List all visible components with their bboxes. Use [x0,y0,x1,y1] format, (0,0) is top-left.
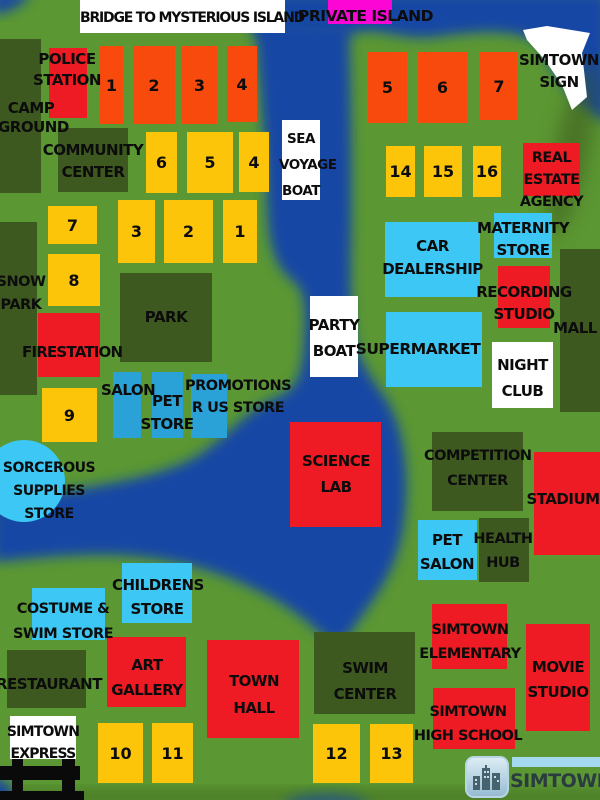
lot-number: 7 [493,77,504,96]
movie-studio-label: MOVIE STUDIO [516,655,600,705]
lot-yellow-1: 1 [223,200,257,263]
label-line: ESTATE [515,169,588,191]
label-line: STORE [112,597,202,621]
label-line: SEA [279,126,323,152]
swim-center-label: SWIM CENTER [312,655,418,707]
lot-number: 8 [68,271,79,290]
lot-yellow-single-9: 9 [42,388,97,442]
simtown-express-label: SIMTOWN EXPRESS [6,721,80,765]
lot-yellow-single-8: 8 [48,254,100,306]
label-line: SIGN [517,71,600,93]
lot-orange-2: 2 [133,46,175,124]
label-line: DEALERSHIP [379,258,486,281]
label-line: LAB [292,474,380,500]
railroad-tie-top [0,766,80,780]
lot-number: 2 [183,222,194,241]
simtown-logo-label: SIMTOWN [510,770,600,792]
label-line: CAMP [0,99,64,118]
party-boat-label: PARTY BOAT [306,312,362,364]
label-line: MOVIE [516,655,600,680]
lot-number: 7 [67,216,78,235]
label-line: CENTER [312,681,418,707]
label-line: PARTY [306,312,362,338]
label-line: CLUB [490,378,555,404]
supermarket-label: SUPERMARKET [347,338,489,360]
label-line: STATION [18,70,116,91]
lot-number: 5 [382,78,393,97]
label-line: MATERNITY [477,217,569,239]
label-line: COSTUME & [12,597,114,622]
label-line: SUPPLIES [2,480,96,503]
label-line: CENTER [39,161,147,183]
lot-orange-3: 3 [182,46,217,124]
lot-number: 4 [236,75,247,94]
label-line: PARK [0,294,46,317]
simtown-map-canvas: 1 2 3 4 5 6 7 6 5 4 3 2 1 7 8 9 14 15 16… [0,0,600,800]
private-island-label: PRIVATE ISLAND [298,5,420,27]
simtown-high-school-label: SIMTOWN HIGH SCHOOL [411,700,525,748]
label-line: STUDIO [516,680,600,705]
lot-yellow-15: 15 [424,146,462,197]
lot-number: 13 [380,744,402,763]
label-line: ART [106,653,188,678]
lot-orange-7: 7 [480,52,518,120]
lot-yellow-10: 10 [98,723,143,783]
lot-number: 1 [234,222,245,241]
promotions-r-us-store-label: PROMOTIONS R US STORE [184,375,292,419]
sorcerous-supplies-store-label: SORCEROUS SUPPLIES STORE [2,457,96,526]
label-line: AGENCY [515,191,588,213]
competition-center-label: COMPETITION CENTER [424,444,531,494]
label-line: SWIM STORE [12,622,114,647]
lot-number: 3 [194,76,205,95]
label-line: SNOW [0,271,46,294]
label-line: HUB [468,551,538,575]
car-dealership-label: CAR DEALERSHIP [379,235,486,281]
lot-orange-5: 5 [368,52,407,123]
maternity-store-label: MATERNITY STORE [477,217,569,261]
lot-yellow-16: 16 [473,146,501,197]
label-line: STORE [477,239,569,261]
lot-number: 10 [109,744,131,763]
city-skyline-icon [472,763,502,791]
costume-swim-store-label: COSTUME & SWIM STORE [12,597,114,647]
label-line: GALLERY [106,678,188,703]
childrens-store-label: CHILDRENS STORE [112,573,202,621]
label-line: SCIENCE [292,448,380,474]
real-estate-agency-label: REAL ESTATE AGENCY [515,147,588,213]
label-line: CAR [379,235,486,258]
lot-yellow-5: 5 [187,132,233,193]
label-line: SIMTOWN [517,49,600,71]
lot-number: 14 [389,162,411,181]
label-line: GROUND [0,118,64,137]
label-line: NIGHT [490,352,555,378]
label-line: PROMOTIONS [184,375,292,397]
label-line: REAL [515,147,588,169]
label-line: SORCEROUS [2,457,96,480]
label-line: POLICE [18,49,116,70]
label-line: CENTER [424,469,531,494]
night-club-label: NIGHT CLUB [490,352,555,404]
lot-number: 9 [64,406,75,425]
label-line: SIMTOWN [411,700,525,724]
label-line: CHILDRENS [112,573,202,597]
lot-number: 15 [432,162,454,181]
label-line: HEALTH [468,527,538,551]
simtown-elementary-label: SIMTOWN ELEMENTARY [413,618,527,666]
label-line: SWIM [312,655,418,681]
label-line: COMPETITION [424,444,531,469]
firestation-label: FIRESTATION [22,341,120,363]
lot-number: 11 [161,744,183,763]
lot-number: 4 [248,153,259,172]
lot-number: 16 [476,162,498,181]
railroad-tie-bottom [0,791,84,800]
label-line: BOAT [306,338,362,364]
lot-yellow-3: 3 [118,200,155,263]
lot-orange-4: 4 [227,46,257,122]
art-gallery-label: ART GALLERY [106,653,188,703]
lot-yellow-11: 11 [152,723,193,783]
stadium-label: STADIUM [522,488,600,510]
logo-bar [512,757,600,767]
community-center-label: COMMUNITY CENTER [39,139,147,183]
snow-park-label: SNOW PARK [0,271,46,317]
lot-yellow-2: 2 [164,200,213,263]
label-line: SIMTOWN [6,721,80,743]
town-hall-label: TOWN HALL [210,668,298,722]
lot-yellow-single-7: 7 [48,206,97,244]
label-line: VOYAGE [279,152,323,178]
restaurant-label: RESTAURANT [0,673,98,695]
lot-yellow-6: 6 [146,132,177,193]
label-line: COMMUNITY [39,139,147,161]
label-line: HIGH SCHOOL [411,724,525,748]
lot-number: 12 [325,744,347,763]
lot-number: 5 [204,153,215,172]
mall-label: MALL [550,317,600,339]
police-station-label: POLICE STATION [18,49,116,91]
label-line: SIMTOWN [413,618,527,642]
lot-number: 6 [437,78,448,97]
label-line: ELEMENTARY [413,642,527,666]
label-line: R US STORE [184,397,292,419]
lot-number: 2 [148,76,159,95]
label-line: HALL [210,695,298,722]
lot-yellow-4: 4 [239,132,269,192]
label-line: STORE [2,503,96,526]
label-line: BOAT [279,178,323,204]
lot-number: 3 [131,222,142,241]
simtown-sign-label: SIMTOWN SIGN [517,49,600,93]
label-line: RECORDING [472,281,576,303]
lot-yellow-14: 14 [386,146,415,197]
lot-yellow-12: 12 [313,724,360,783]
pond-top-left [0,0,30,15]
bridge-label: BRIDGE TO MYSTERIOUS ISLAND [80,7,285,29]
label-line: TOWN [210,668,298,695]
health-hub-label: HEALTH HUB [468,527,538,575]
lot-yellow-13: 13 [370,724,413,783]
park-label: PARK [129,306,203,328]
label-line: EXPRESS [6,743,80,765]
simtown-logo-button [465,756,509,798]
lot-orange-6: 6 [418,52,467,123]
sea-voyage-boat-label: SEA VOYAGE BOAT [279,126,323,204]
science-lab-label: SCIENCE LAB [292,448,380,500]
lot-number: 6 [156,153,167,172]
camp-ground-label: CAMP GROUND [0,99,64,137]
